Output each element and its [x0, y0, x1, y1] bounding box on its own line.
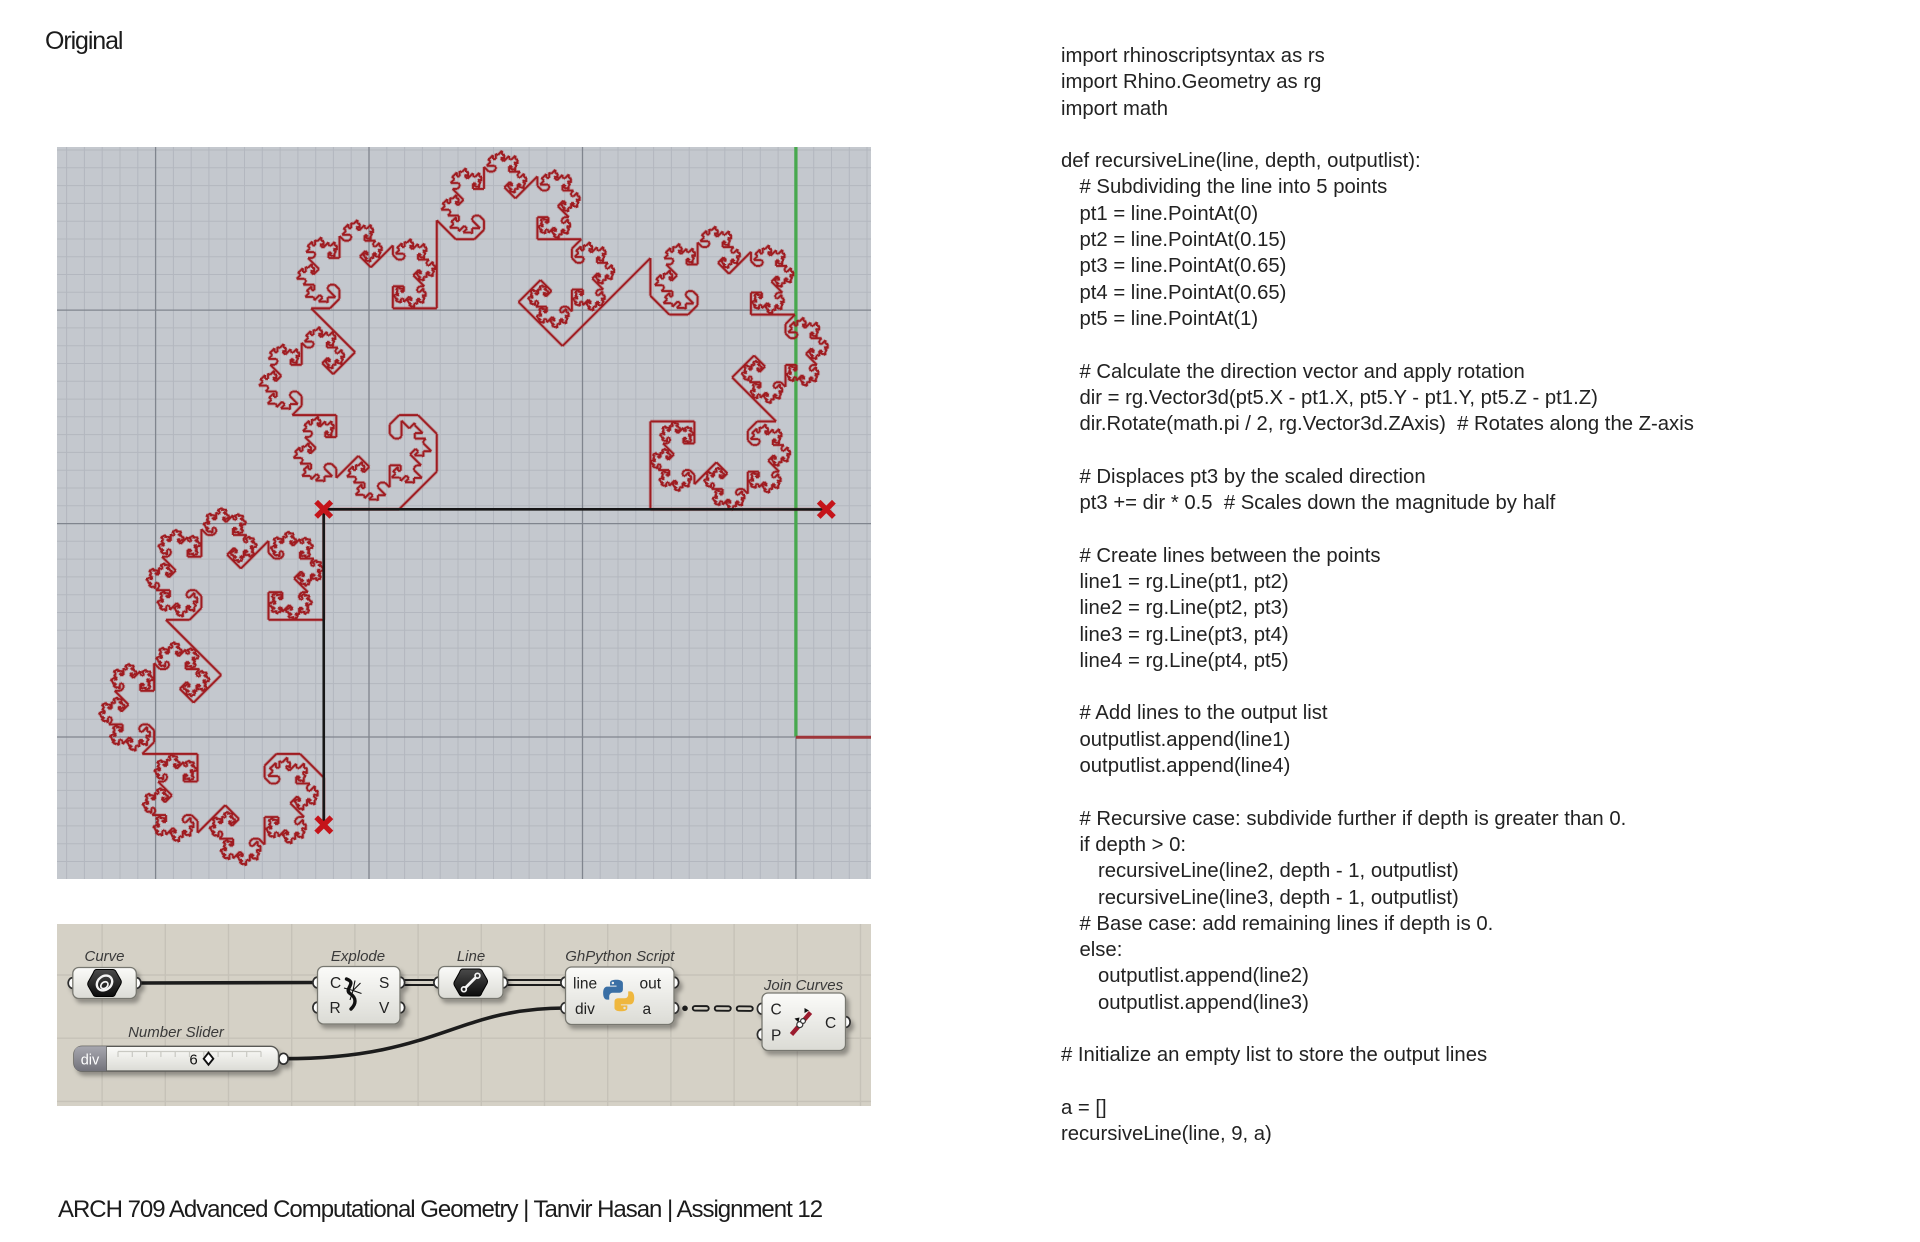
svg-text:out: out [640, 976, 662, 993]
svg-text:6: 6 [189, 1052, 197, 1069]
svg-text:line: line [573, 976, 597, 993]
svg-text:C: C [330, 975, 341, 992]
svg-text:C: C [771, 1002, 782, 1019]
svg-text:div: div [575, 1001, 595, 1018]
svg-text:Join Curves: Join Curves [763, 977, 844, 994]
svg-text:S: S [379, 975, 389, 992]
svg-text:Curve: Curve [84, 948, 124, 965]
svg-text:V: V [379, 1000, 390, 1017]
svg-text:Number Slider: Number Slider [128, 1024, 225, 1041]
svg-text:Line: Line [457, 948, 485, 965]
svg-text:R: R [330, 1000, 341, 1017]
svg-text:div: div [81, 1053, 100, 1069]
svg-text:a: a [643, 1001, 652, 1018]
svg-text:P: P [771, 1028, 781, 1045]
svg-text:C: C [825, 1015, 836, 1032]
svg-text:GhPython Script: GhPython Script [565, 948, 675, 965]
svg-text:Explode: Explode [331, 948, 385, 965]
